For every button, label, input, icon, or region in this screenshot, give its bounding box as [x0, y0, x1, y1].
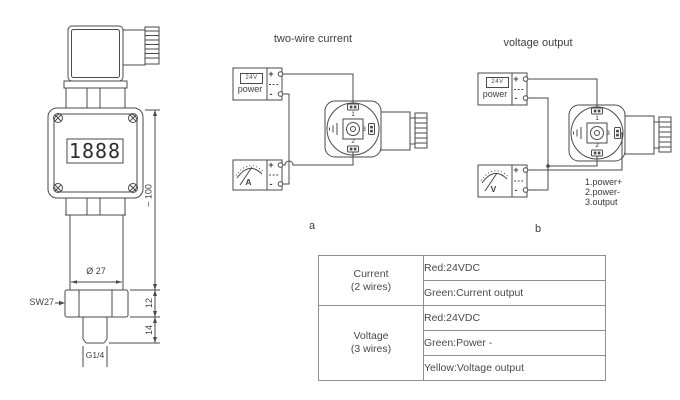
voltmeter-minus: -: [510, 185, 522, 195]
wrench-size-label: SW27: [26, 297, 54, 307]
group-label-line1: Voltage: [319, 330, 423, 343]
diagram-b-title: voltage output: [468, 37, 608, 49]
power-label-a: power: [233, 84, 267, 94]
body-cylinder: [70, 215, 123, 290]
upper-neck: [66, 88, 125, 108]
wire-b-power-plus: [528, 79, 598, 108]
wiring-color-table: Current (2 wires) Red:24VDC Green:Curren…: [318, 255, 606, 381]
din-connector-face-a: [325, 101, 381, 157]
hex-nut: [65, 290, 128, 317]
table-cell: Red:24VDC: [424, 256, 606, 281]
dim-thread-height: 14: [144, 322, 154, 338]
technical-drawing-page: two-wire current voltage output a b 1888…: [0, 0, 680, 400]
din-connector-body-a: [381, 112, 427, 150]
pin2-label-a: 2: [346, 138, 360, 145]
pressure-port: [83, 317, 107, 343]
dim-diameter-label: Ø 27: [74, 266, 118, 276]
pin-3: [615, 128, 621, 139]
pin2-label-b: 2: [590, 142, 604, 149]
voltmeter-plus: +: [510, 165, 522, 175]
ground-pin: [330, 123, 338, 135]
dim-overall-height: ~ 100: [144, 176, 155, 216]
thread-size-label: G1/4: [81, 350, 109, 360]
pin-1: [348, 104, 359, 110]
pin3-label-a: 3: [357, 126, 371, 133]
legend-pin1: 1.power+: [585, 177, 655, 187]
pin1-label-b: 1: [590, 115, 604, 122]
table-cell: Red:24VDC: [424, 306, 606, 331]
ammeter-letter: A: [241, 177, 256, 187]
lcd-display-value: 1888: [67, 139, 123, 163]
ground-pin: [574, 127, 582, 139]
pin1-label-a: 1: [346, 111, 360, 118]
table-cell: Green:Power -: [424, 331, 606, 356]
table-group-current: Current (2 wires): [319, 256, 424, 306]
wire-junction-dot: [546, 164, 550, 168]
din-connector-face-b: [569, 105, 625, 161]
cable-gland: [123, 30, 145, 65]
table-group-voltage: Voltage (3 wires): [319, 306, 424, 381]
group-label-line2: (2 wires): [319, 281, 423, 294]
legend-pin2: 2.power-: [585, 187, 655, 197]
wire-a-ammeter-plus: [283, 152, 353, 165]
legend-pin3: 3.output: [585, 197, 655, 207]
power-a-plus: +: [265, 69, 277, 79]
voltmeter-letter: V: [486, 184, 501, 194]
power-badge-a: 24V: [240, 73, 263, 84]
table-cell: Green:Current output: [424, 281, 606, 306]
pin-2: [592, 150, 603, 156]
wire-a-power-plus: [283, 74, 353, 104]
din-connector-body-b: [625, 116, 671, 154]
ammeter-plus: +: [265, 160, 277, 170]
power-b-plus: +: [510, 74, 522, 84]
dim-diameter: [71, 280, 122, 284]
ammeter-minus: -: [265, 179, 277, 189]
pin-1: [592, 108, 603, 114]
group-label-line1: Current: [319, 268, 423, 281]
flange: [64, 81, 127, 88]
wrench-leader: [55, 301, 65, 305]
power-badge-b: 24V: [486, 77, 509, 88]
group-label-line2: (3 wires): [319, 343, 423, 356]
power-a-minus: -: [265, 89, 277, 99]
dim-hex-height: 12: [144, 295, 154, 311]
diagram-b-caption: b: [528, 223, 548, 235]
lower-neck: [65, 198, 126, 215]
din-plug-side-view: [68, 26, 159, 81]
wire-b-output: [528, 133, 623, 170]
diagram-a-caption: a: [302, 220, 322, 232]
table-cell: Yellow:Voltage output: [424, 356, 606, 381]
wire-b-power-minus-common: [528, 98, 549, 190]
diagram-a-title: two-wire current: [243, 33, 383, 45]
wire-a-power-minus: [283, 94, 289, 184]
power-label-b: power: [478, 89, 512, 99]
pin3-label-b: 3: [601, 130, 615, 137]
power-b-minus: -: [510, 93, 522, 103]
pin-2: [348, 146, 359, 152]
